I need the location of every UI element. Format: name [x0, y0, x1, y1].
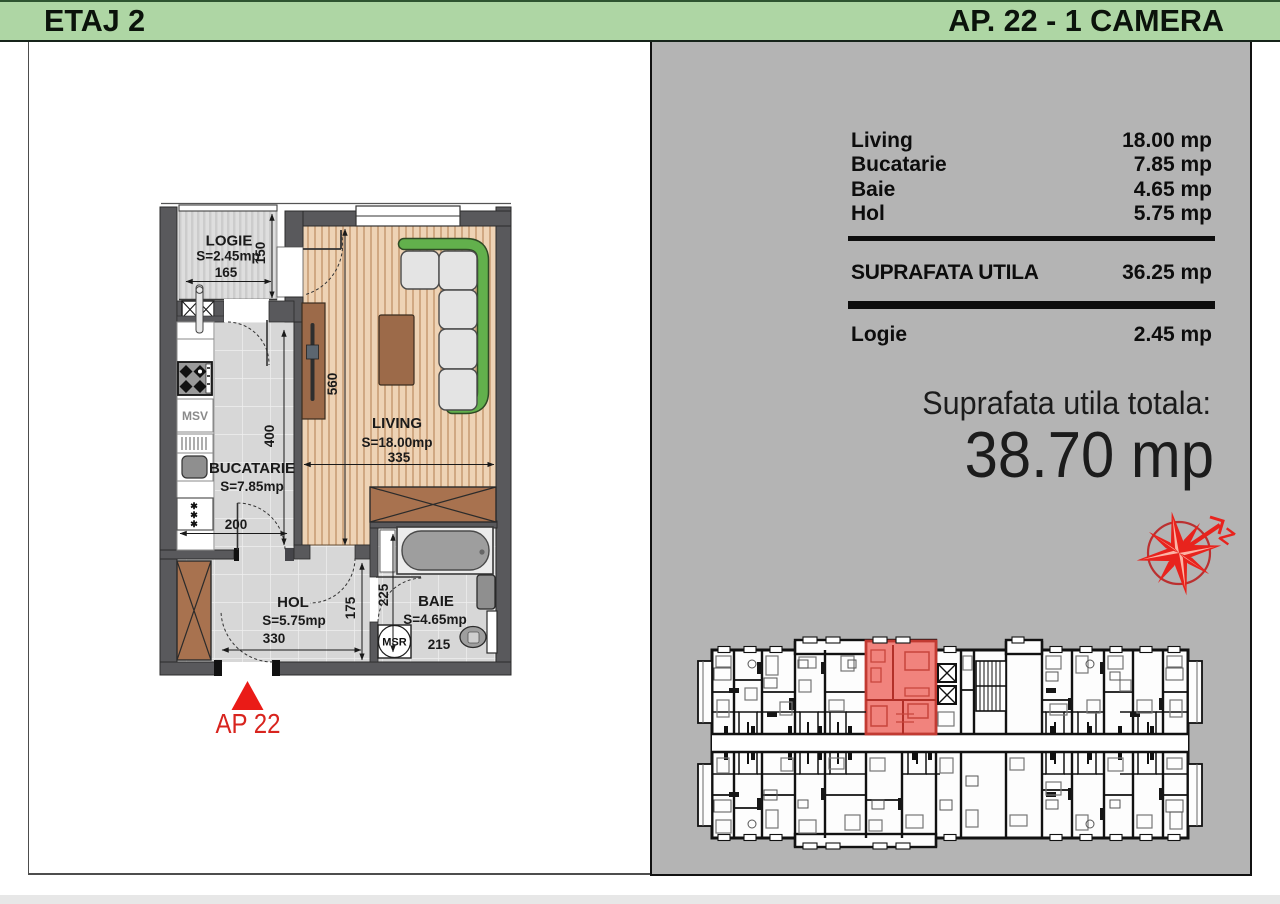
svg-text:200: 200 — [225, 517, 248, 532]
svg-text:215: 215 — [428, 637, 451, 652]
svg-text:AP 22: AP 22 — [216, 708, 281, 739]
svg-text:LIVING: LIVING — [372, 415, 422, 432]
svg-text:175: 175 — [343, 596, 358, 619]
svg-text:MSR: MSR — [382, 637, 407, 649]
svg-text:S=4.65mp: S=4.65mp — [403, 612, 466, 627]
svg-text:335: 335 — [388, 450, 411, 465]
svg-text:225: 225 — [376, 583, 391, 606]
svg-text:S=7.85mp: S=7.85mp — [220, 479, 283, 494]
svg-text:HOL: HOL — [277, 594, 309, 611]
svg-text:330: 330 — [263, 631, 286, 646]
svg-text:400: 400 — [262, 425, 277, 448]
svg-text:S=5.75mp: S=5.75mp — [262, 613, 325, 628]
svg-text:LOGIE: LOGIE — [206, 233, 253, 250]
svg-text:BAIE: BAIE — [418, 593, 454, 610]
svg-text:S=18.00mp: S=18.00mp — [362, 435, 433, 450]
svg-text:MSV: MSV — [182, 409, 208, 423]
svg-text:560: 560 — [325, 373, 340, 396]
svg-text:150: 150 — [253, 242, 268, 265]
svg-text:165: 165 — [215, 265, 238, 280]
svg-text:BUCATARIE: BUCATARIE — [209, 460, 295, 477]
svg-text:✱: ✱ — [190, 519, 198, 529]
svg-text:S=2.45mp: S=2.45mp — [196, 249, 259, 264]
